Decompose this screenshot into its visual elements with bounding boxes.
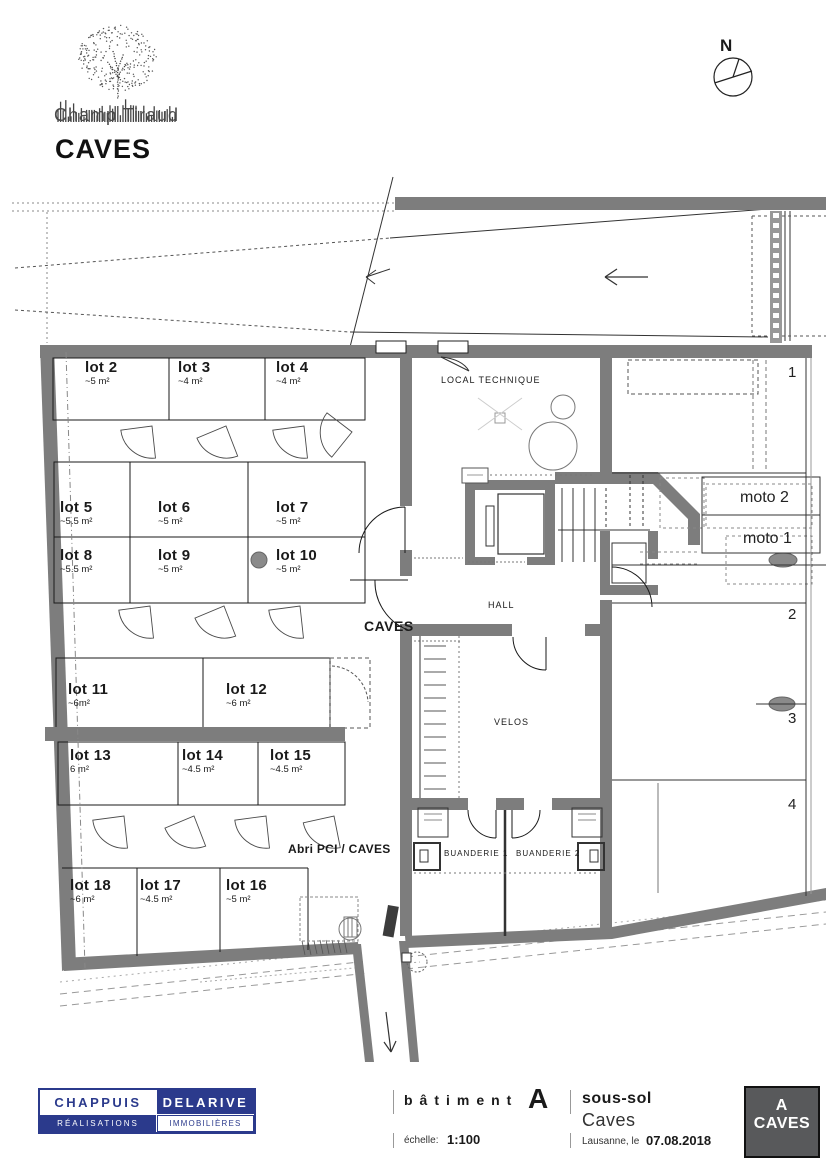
- divider: [570, 1090, 571, 1114]
- room-label-caves: CAVES: [364, 618, 414, 634]
- divider: [570, 1133, 571, 1148]
- room-label-abri-pci: Abri PCI / CAVES: [288, 842, 391, 856]
- badge-level: CAVES: [746, 1115, 818, 1133]
- scale-label: échelle:: [404, 1135, 438, 1146]
- room-label-buanderie1: BUANDERIE 1: [444, 849, 508, 858]
- parking-stall-number: 2: [788, 606, 796, 623]
- room-label-velos: VELOS: [494, 717, 529, 727]
- lot-label: lot 17~4.5 m²: [140, 878, 181, 905]
- parking-stall-number: 3: [788, 710, 796, 727]
- lot-label: lot 4~4 m²: [276, 360, 308, 387]
- divider: [393, 1133, 394, 1148]
- parking-label-moto1: moto 1: [743, 530, 792, 548]
- lot-label: lot 8~5.5 m²: [60, 548, 92, 575]
- floor-plan-drawing: [0, 0, 826, 1168]
- room-label-hall: HALL: [488, 600, 515, 610]
- lot-label: lot 10~5 m²: [276, 548, 317, 575]
- parking-stall-number: 4: [788, 796, 796, 813]
- place-label: Lausanne, le: [582, 1136, 639, 1147]
- company-tagline-2: IMMOBILIÈRES: [157, 1115, 254, 1132]
- lot-label: lot 12~6 m²: [226, 682, 267, 709]
- sheet-badge: A CAVES: [744, 1086, 820, 1158]
- lot-label: lot 11~6m²: [68, 682, 108, 709]
- scale-value: 1:100: [447, 1132, 480, 1147]
- walls: [40, 197, 826, 1062]
- divider: [393, 1090, 394, 1114]
- lot-label: lot 5~5.5 m²: [60, 500, 92, 527]
- room-label-buanderie2: BUANDERIE 2: [516, 849, 580, 858]
- parking-label-moto2: moto 2: [740, 489, 789, 507]
- lot-label: lot 6~5 m²: [158, 500, 190, 527]
- company-tagline-1: RÉALISATIONS: [40, 1115, 156, 1132]
- level-value: Caves: [582, 1110, 636, 1131]
- lot-label: lot 7~5 m²: [276, 500, 308, 527]
- lot-label: lot 14~4.5 m²: [182, 748, 223, 775]
- company-logo: CHAPPUIS DELARIVE RÉALISATIONS IMMOBILIÈ…: [38, 1088, 256, 1134]
- company-name-2: DELARIVE: [157, 1090, 254, 1114]
- batiment-label: bâtiment: [404, 1092, 518, 1108]
- company-name-1: CHAPPUIS: [40, 1090, 156, 1114]
- floor-plan-sheet: Champ Tiraud CAVES N: [0, 0, 826, 1168]
- lot-label: lot 136 m²: [70, 748, 111, 775]
- level-label: sous-sol: [582, 1090, 652, 1108]
- room-label-local-technique: LOCAL TECHNIQUE: [441, 375, 541, 385]
- pillar: [251, 552, 267, 568]
- date-value: 07.08.2018: [646, 1133, 711, 1148]
- parking-stall-number: 1: [788, 364, 796, 381]
- velos-room: [420, 636, 459, 798]
- lot-label: lot 16~5 m²: [226, 878, 267, 905]
- door-fans: [89, 407, 357, 850]
- badge-building: A: [746, 1097, 818, 1115]
- lot-label: lot 18~6 m²: [70, 878, 111, 905]
- buanderies: [414, 808, 604, 936]
- lot-label: lot 2~5 m²: [85, 360, 117, 387]
- batiment-value: A: [528, 1083, 548, 1115]
- room-outlines: [45, 358, 370, 956]
- parking-lines: [612, 358, 826, 896]
- lot-label: lot 15~4.5 m²: [270, 748, 311, 775]
- lot-label: lot 9~5 m²: [158, 548, 190, 575]
- lot-label: lot 3~4 m²: [178, 360, 210, 387]
